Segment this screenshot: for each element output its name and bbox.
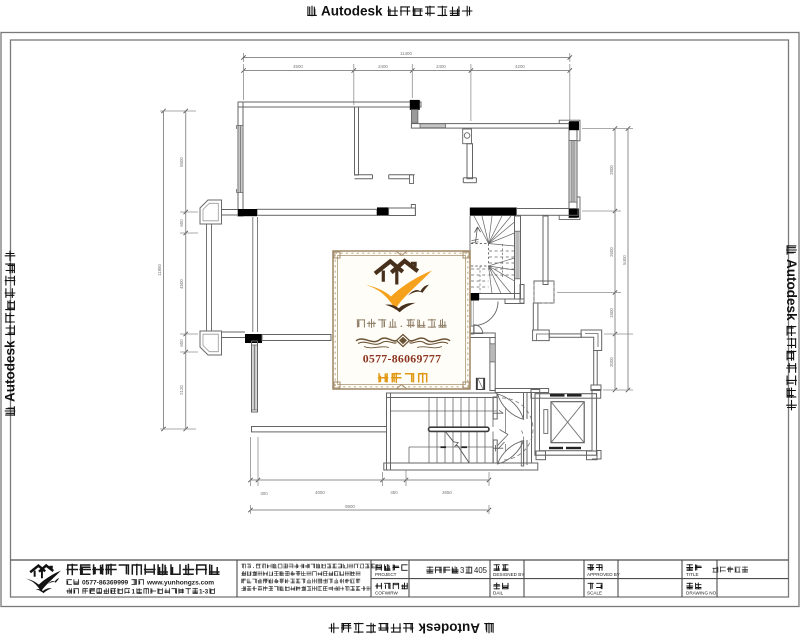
svg-text:0577-86369999: 0577-86369999 (82, 580, 129, 587)
svg-text:2000: 2000 (609, 357, 614, 367)
svg-text:DESIGNED BY: DESIGNED BY (493, 572, 524, 577)
svg-text:Autodesk: Autodesk (784, 259, 799, 321)
svg-text:PROJECT: PROJECT (375, 572, 397, 577)
svg-text:2400: 2400 (378, 64, 388, 69)
svg-text:1: 1 (132, 589, 136, 596)
svg-text:0577-86069777: 0577-86069777 (363, 352, 442, 366)
svg-text:DAIL: DAIL (493, 590, 504, 595)
svg-text:4050: 4050 (315, 490, 325, 495)
svg-text:COFWIRW: COFWIRW (375, 590, 399, 595)
svg-text:3: 3 (460, 566, 464, 575)
svg-text:www.yunhongzs.com: www.yunhongzs.com (146, 580, 214, 587)
svg-text:2650: 2650 (442, 490, 452, 495)
svg-text:600: 600 (179, 219, 184, 227)
svg-text:4500: 4500 (293, 64, 303, 69)
svg-text:4200: 4200 (515, 64, 525, 69)
svg-text:5500: 5500 (179, 157, 184, 167)
svg-text:2800: 2800 (609, 165, 614, 175)
svg-text:Autodesk: Autodesk (3, 340, 18, 402)
svg-text:11850: 11850 (157, 264, 162, 276)
svg-text:2400: 2400 (436, 64, 446, 69)
svg-text:405: 405 (474, 566, 488, 575)
svg-text:4500: 4500 (179, 279, 184, 289)
svg-text:TITLE: TITLE (686, 572, 699, 577)
svg-text:Autodesk: Autodesk (321, 4, 383, 19)
svg-text:1-3: 1-3 (199, 589, 209, 596)
svg-text:11400: 11400 (400, 51, 412, 56)
svg-text:5400: 5400 (622, 255, 627, 265)
svg-text:Autodesk: Autodesk (418, 621, 480, 636)
svg-text:450: 450 (390, 490, 398, 495)
svg-text:DRAWING NO: DRAWING NO (686, 590, 717, 595)
svg-text:1500: 1500 (609, 308, 614, 318)
svg-text:600: 600 (179, 339, 184, 347)
svg-text:2120: 2120 (179, 385, 184, 395)
svg-text:300: 300 (260, 491, 268, 496)
svg-text:APPROVED BY: APPROVED BY (587, 572, 620, 577)
svg-text:9900: 9900 (345, 504, 355, 509)
svg-text:SCALE: SCALE (587, 590, 602, 595)
svg-text:2600: 2600 (609, 247, 614, 257)
